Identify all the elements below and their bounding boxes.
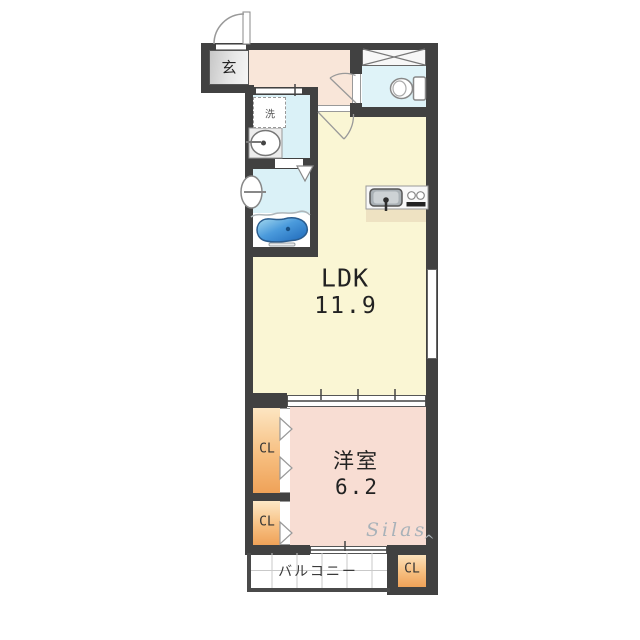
- watermark: Silas: [366, 519, 427, 541]
- toilet-door-arc-icon: [330, 73, 356, 103]
- western-room-size-label: 6.2: [335, 475, 379, 499]
- floorplan-canvas: 玄 洗 LDK 11.9 洋室 6.2 CL CL CL バルコニー Silas…: [0, 0, 640, 640]
- bathtub-icon: [257, 218, 307, 246]
- watermark-caret: ^: [423, 533, 435, 549]
- cross-box-icon: [363, 49, 425, 65]
- western-room-label: 洋室: [333, 445, 379, 475]
- toilet-icon: [391, 77, 426, 100]
- closet-2-label: CL: [259, 515, 275, 530]
- bath-folding-door-icon: [297, 166, 313, 181]
- shower-mixer-icon: [241, 176, 266, 208]
- washbasin-icon: [246, 128, 282, 158]
- entrance-door-arc-icon: [214, 12, 250, 44]
- closet-door-triangle-icon: [280, 418, 292, 544]
- ldk-door-arc-icon: [318, 112, 354, 139]
- washer-label: 洗: [265, 106, 275, 121]
- kitchen-counter: [366, 186, 428, 211]
- fixtures-overlay: [0, 0, 640, 640]
- closet-3-label: CL: [404, 562, 420, 577]
- balcony-label: バルコニー: [278, 561, 358, 581]
- ldk-size-label: 11.9: [314, 293, 377, 319]
- ldk-label: LDK: [321, 264, 369, 293]
- entrance-label: 玄: [221, 57, 236, 78]
- tub-deck-wave: [251, 211, 310, 217]
- closet-1-label: CL: [259, 442, 275, 457]
